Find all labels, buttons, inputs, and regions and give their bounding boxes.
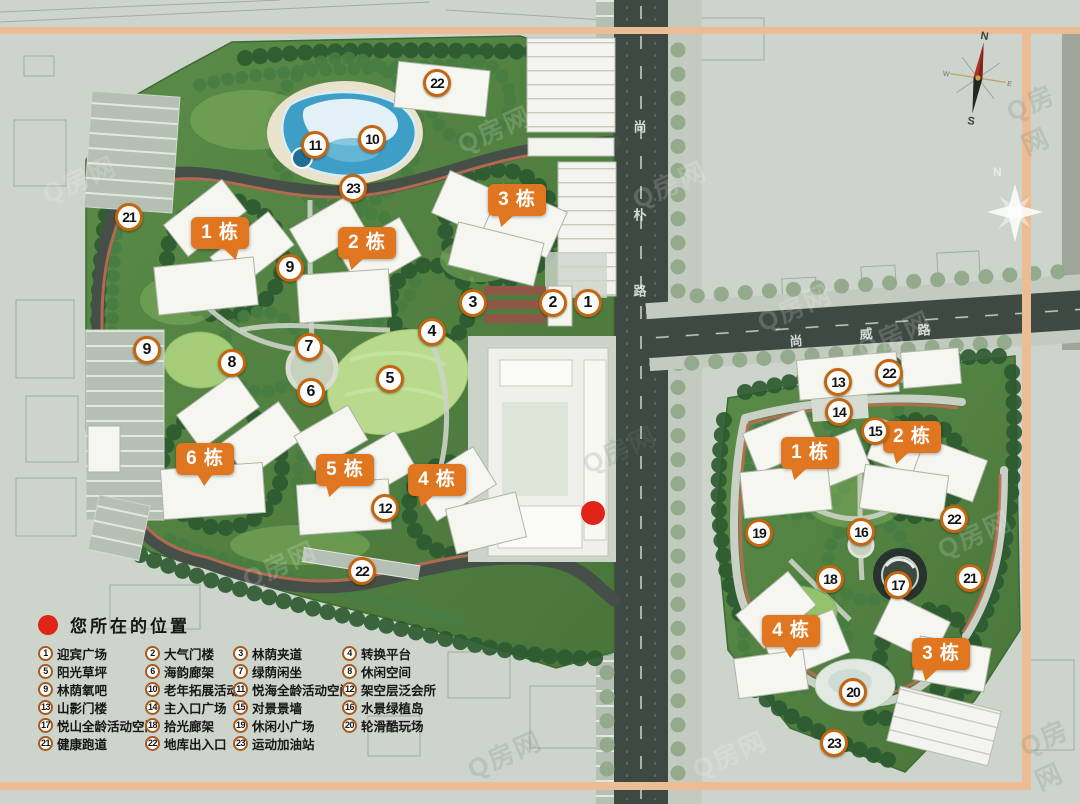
legend-item-label: 架空层泛会所 [361, 680, 436, 699]
legend-item-label: 主入口广场 [164, 698, 227, 717]
legend: 您所在的位置 1迎宾广场2大气门楼3林荫夹道4转换平台5阳光草坪6海韵廊架7绿荫… [38, 612, 482, 750]
legend-item-number: 21 [38, 736, 53, 751]
legend-item-18: 18拾光廊架 [145, 718, 233, 732]
legend-item-5: 5阳光草坪 [38, 664, 145, 678]
legend-item-number: 5 [38, 664, 53, 679]
legend-item-label: 绿荫闲坐 [252, 662, 302, 681]
map-marker-14: 14 [825, 398, 853, 426]
legend-item-label: 拾光廊架 [164, 716, 214, 735]
legend-item-label: 迎宾广场 [57, 644, 107, 663]
map-marker-1: 1 [574, 289, 602, 317]
map-marker-19: 19 [745, 519, 773, 547]
legend-item-number: 1 [38, 646, 53, 661]
map-marker-21: 21 [115, 203, 143, 231]
map-marker-18: 18 [816, 565, 844, 593]
road-name-horizontal-char: 尚 [789, 330, 803, 350]
legend-item-number: 2 [145, 646, 160, 661]
legend-item-number: 7 [233, 664, 248, 679]
legend-grid: 1迎宾广场2大气门楼3林荫夹道4转换平台5阳光草坪6海韵廊架7绿荫闲坐8休闲空间… [38, 646, 482, 750]
legend-item-number: 11 [233, 682, 248, 697]
map-marker-20: 20 [839, 678, 867, 706]
location-dot-icon [38, 615, 58, 635]
legend-item-19: 19休闲小广场 [233, 718, 342, 732]
road-name-vertical-char: 尚 [633, 117, 646, 136]
legend-item-label: 林荫氧吧 [57, 680, 107, 699]
legend-item-number: 23 [233, 736, 248, 751]
road-name-vertical-char: 路 [633, 281, 646, 300]
legend-item-22: 22地库出入口 [145, 736, 233, 750]
map-marker-5: 5 [376, 365, 404, 393]
legend-item-9: 9林荫氧吧 [38, 682, 145, 696]
map-marker-23: 23 [820, 729, 848, 757]
legend-item-17: 17悦山全龄活动空间 [38, 718, 145, 732]
legend-item-11: 11悦海全龄活动空间 [233, 682, 342, 696]
legend-item-label: 转换平台 [361, 644, 411, 663]
legend-item-number: 8 [342, 664, 357, 679]
legend-item-number: 16 [342, 700, 357, 715]
legend-item-2: 2大气门楼 [145, 646, 233, 660]
map-marker-2: 2 [539, 289, 567, 317]
legend-item-21: 21健康跑道 [38, 736, 145, 750]
legend-item-12: 12架空层泛会所 [342, 682, 482, 696]
legend-item-14: 14主入口广场 [145, 700, 233, 714]
building-label-1栋: 1 栋 [191, 217, 249, 249]
legend-item-number: 15 [233, 700, 248, 715]
building-label-6栋: 6 栋 [176, 443, 234, 475]
map-marker-22: 22 [423, 69, 451, 97]
legend-item-6: 6海韵廊架 [145, 664, 233, 678]
legend-item-label: 阳光草坪 [57, 662, 107, 681]
legend-item-label: 运动加油站 [252, 734, 315, 753]
map-marker-10: 10 [358, 125, 386, 153]
current-location-dot [581, 501, 605, 525]
map-marker-3: 3 [459, 289, 487, 317]
map-marker-9: 9 [276, 254, 304, 282]
legend-item-label: 休闲空间 [361, 662, 411, 681]
building-label-3栋: 3 栋 [912, 638, 970, 670]
road-name-vertical-char: 朴 [633, 205, 646, 224]
legend-item-label: 大气门楼 [164, 644, 214, 663]
legend-item-10: 10老年拓展活动 [145, 682, 233, 696]
legend-item-number: 19 [233, 718, 248, 733]
north-hint-label: N [993, 165, 1002, 179]
legend-item-label: 林荫夹道 [252, 644, 302, 663]
legend-item-3: 3林荫夹道 [233, 646, 342, 660]
building-label-4栋: 4 栋 [762, 615, 820, 647]
map-marker-17: 17 [884, 571, 912, 599]
road-name-horizontal-char: 威 [859, 323, 873, 343]
legend-item-15: 15对景景墙 [233, 700, 342, 714]
map-marker-4: 4 [418, 318, 446, 346]
legend-item-23: 23运动加油站 [233, 736, 342, 750]
map-marker-6: 6 [297, 378, 325, 406]
legend-item-16: 16水景绿植岛 [342, 700, 482, 714]
map-marker-13: 13 [824, 368, 852, 396]
legend-item-1: 1迎宾广场 [38, 646, 145, 660]
building-label-4栋: 4 栋 [408, 464, 466, 496]
legend-item-label: 地库出入口 [164, 734, 227, 753]
legend-item-13: 13山影门楼 [38, 700, 145, 714]
map-marker-16: 16 [847, 518, 875, 546]
legend-item-label: 海韵廊架 [164, 662, 214, 681]
legend-item-number: 9 [38, 682, 53, 697]
legend-item-number: 17 [38, 718, 53, 733]
legend-item-number: 13 [38, 700, 53, 715]
legend-item-number: 3 [233, 646, 248, 661]
building-label-1栋: 1 栋 [781, 437, 839, 469]
map-marker-7: 7 [295, 333, 323, 361]
map-marker-22: 22 [940, 505, 968, 533]
legend-item-label: 休闲小广场 [252, 716, 315, 735]
legend-item-label: 悦海全龄活动空间 [252, 680, 352, 699]
legend-item-label: 老年拓展活动 [164, 680, 239, 699]
legend-item-number: 12 [342, 682, 357, 697]
legend-item-7: 7绿荫闲坐 [233, 664, 342, 678]
legend-item-number: 14 [145, 700, 160, 715]
map-marker-22: 22 [348, 557, 376, 585]
map-marker-8: 8 [218, 349, 246, 377]
legend-item-number: 10 [145, 682, 160, 697]
legend-item-label: 健康跑道 [57, 734, 107, 753]
building-label-3栋: 3 栋 [488, 184, 546, 216]
legend-item-label: 轮滑酷玩场 [361, 716, 424, 735]
legend-item-4: 4转换平台 [342, 646, 482, 660]
legend-item-number: 6 [145, 664, 160, 679]
pergola-rows [484, 286, 546, 323]
map-marker-12: 12 [371, 494, 399, 522]
building-label-5栋: 5 栋 [316, 454, 374, 486]
legend-title: 您所在的位置 [70, 612, 190, 637]
map-marker-15: 15 [861, 417, 889, 445]
legend-item-20: 20轮滑酷玩场 [342, 718, 482, 732]
road-name-horizontal-char: 路 [917, 319, 931, 339]
map-marker-9: 9 [133, 336, 161, 364]
map-marker-23: 23 [339, 174, 367, 202]
building-label-2栋: 2 栋 [883, 421, 941, 453]
site-plan-canvas: N S W E N 221110232193214978561222132214… [0, 0, 1080, 804]
legend-item-number: 20 [342, 718, 357, 733]
legend-item-label: 水景绿植岛 [361, 698, 424, 717]
legend-item-label: 悦山全龄活动空间 [57, 716, 157, 735]
map-marker-22: 22 [875, 359, 903, 387]
legend-item-label: 对景景墙 [252, 698, 302, 717]
legend-item-number: 22 [145, 736, 160, 751]
legend-item-number: 18 [145, 718, 160, 733]
legend-item-8: 8休闲空间 [342, 664, 482, 678]
map-marker-21: 21 [956, 564, 984, 592]
map-marker-11: 11 [301, 131, 329, 159]
building-label-2栋: 2 栋 [338, 227, 396, 259]
legend-item-number: 4 [342, 646, 357, 661]
legend-item-label: 山影门楼 [57, 698, 107, 717]
